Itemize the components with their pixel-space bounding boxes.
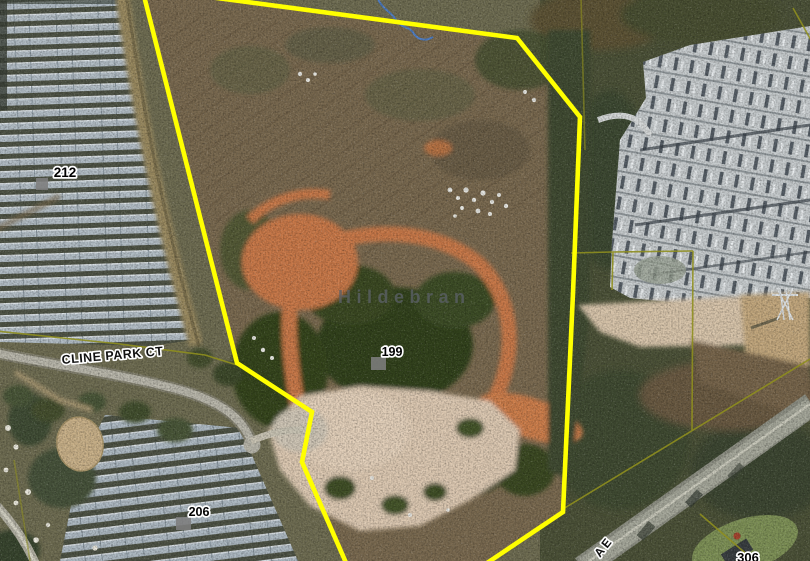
aerial-imagery: Hildebran 212 199 206 306 CLINE PARK CT …: [0, 0, 810, 561]
address-label-306: 306: [737, 550, 759, 561]
city-watermark-label: Hildebran: [338, 287, 471, 307]
address-point-marker: [36, 178, 48, 190]
address-label-212: 212: [54, 165, 77, 180]
address-label-199: 199: [382, 345, 403, 359]
aerial-map-viewport[interactable]: Hildebran 212 199 206 306 CLINE PARK CT …: [0, 0, 810, 561]
address-label-206: 206: [189, 505, 210, 519]
grain-light: [0, 0, 810, 561]
